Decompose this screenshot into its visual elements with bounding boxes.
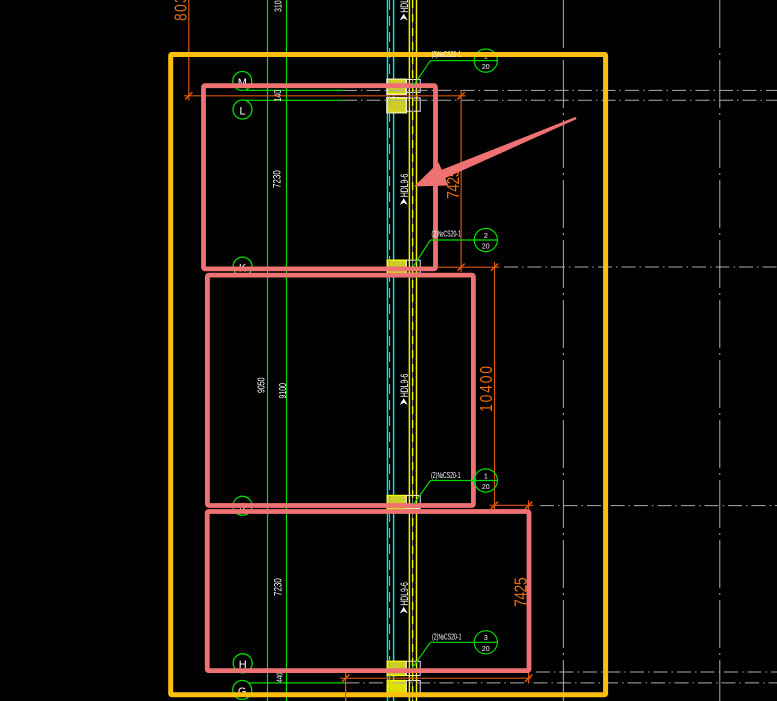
svg-text:HDL9-6: HDL9-6 [398,374,410,397]
svg-text:20: 20 [482,646,490,653]
svg-text:10400: 10400 [477,364,496,412]
svg-text:HDL9-6: HDL9-6 [398,582,410,605]
svg-text:7230: 7230 [272,578,285,596]
svg-text:7230: 7230 [271,170,284,188]
svg-text:(2)№CS20-1: (2)№CS20-1 [431,470,461,480]
svg-text:20: 20 [482,244,490,251]
svg-text:20: 20 [482,484,490,491]
svg-text:310: 310 [272,0,284,12]
svg-text:2: 2 [484,233,488,240]
svg-text:440: 440 [277,672,285,682]
svg-text:1: 1 [484,473,488,480]
svg-text:9100: 9100 [277,383,289,399]
svg-text:803: 803 [172,0,191,21]
svg-text:3: 3 [484,635,488,642]
svg-text:(2)№CS20-1: (2)№CS20-1 [432,49,462,59]
svg-text:9050: 9050 [255,377,267,393]
svg-text:(2)№CS20-1: (2)№CS20-1 [432,229,462,239]
svg-text:(2)№CS20-1: (2)№CS20-1 [432,631,462,641]
svg-text:20: 20 [482,64,490,71]
svg-text:L: L [239,105,245,117]
svg-text:HDL9-6: HDL9-6 [398,0,410,13]
svg-text:HDL9-6: HDL9-6 [398,174,410,197]
